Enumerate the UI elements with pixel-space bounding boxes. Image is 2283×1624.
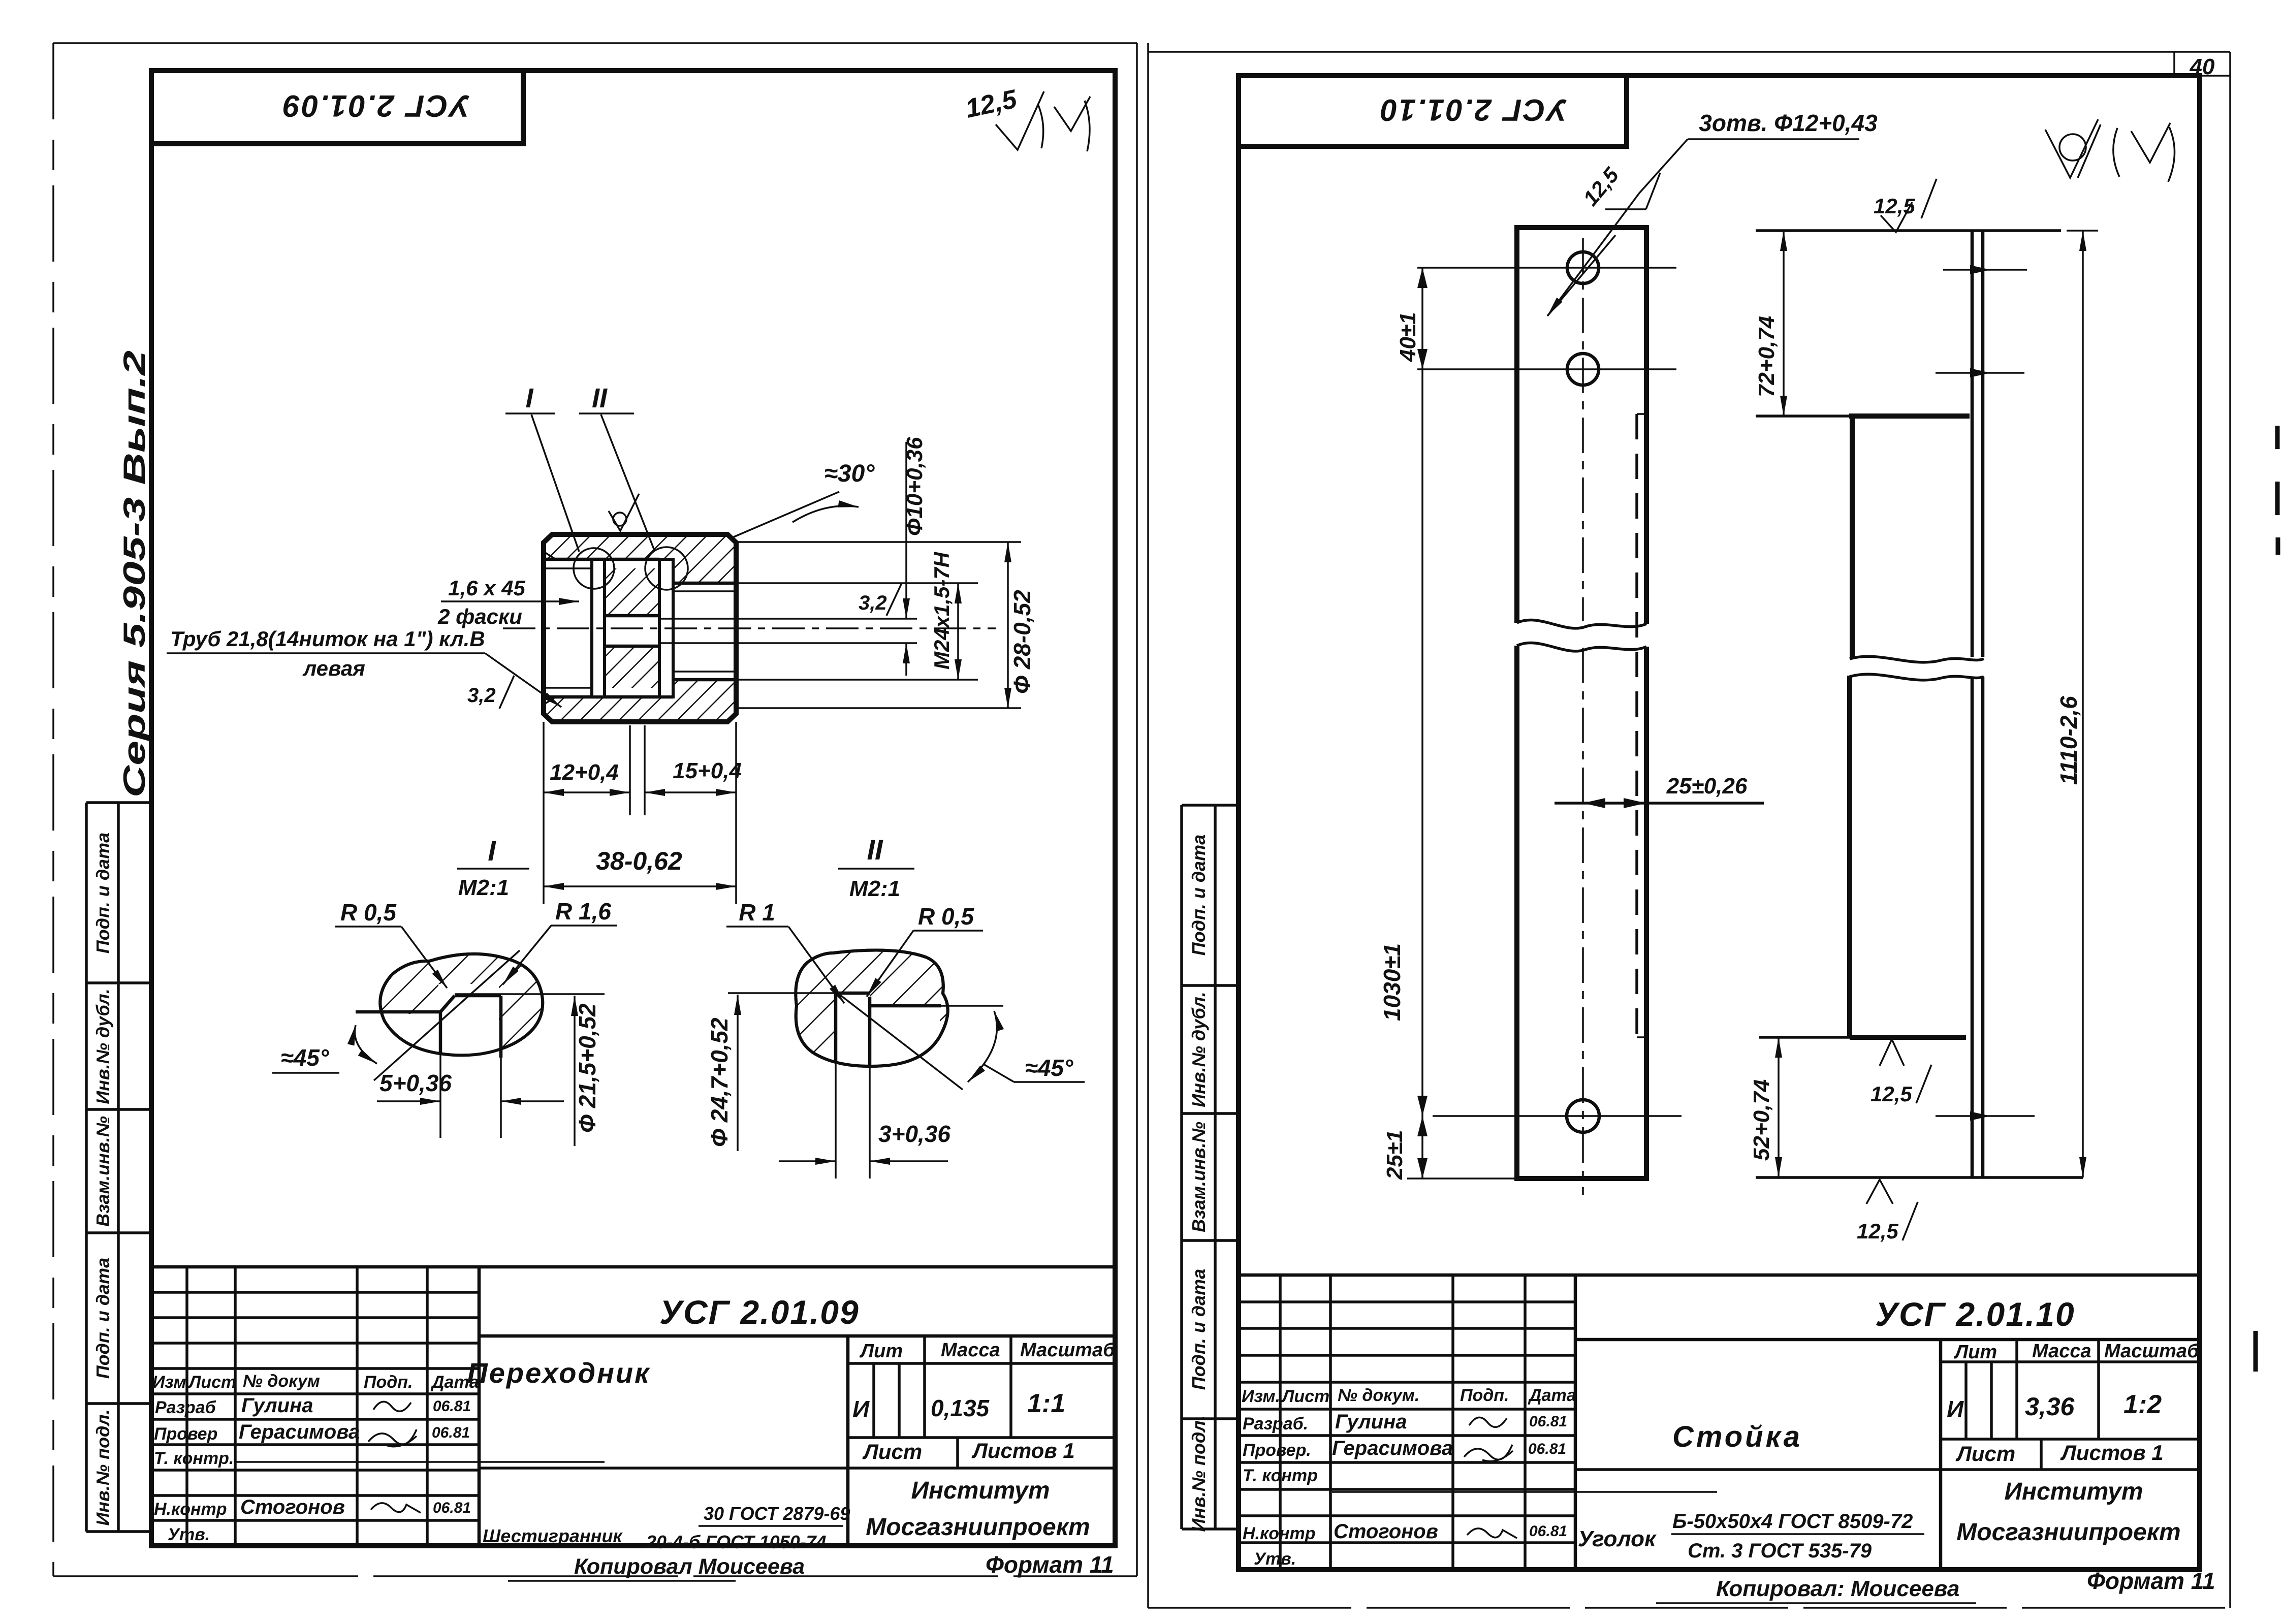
svg-text:25±1: 25±1 <box>1382 1130 1407 1180</box>
svg-text:5+0,36: 5+0,36 <box>379 1070 452 1096</box>
svg-text:Копировал Моисеева: Копировал Моисеева <box>574 1554 805 1579</box>
svg-text:Лист: Лист <box>1281 1387 1329 1406</box>
svg-text:Провер.: Провер. <box>1243 1441 1311 1460</box>
svg-text:Серия 5.905-3 Вып.2: Серия 5.905-3 Вып.2 <box>117 351 151 798</box>
svg-text:Подп.: Подп. <box>1460 1386 1509 1405</box>
svg-text:Масштаб: Масштаб <box>2104 1341 2200 1362</box>
svg-text:И: И <box>852 1396 870 1422</box>
svg-text:М2:1: М2:1 <box>849 876 900 901</box>
svg-text:Инв.№ дубл.: Инв.№ дубл. <box>92 989 113 1104</box>
svg-text:12,5: 12,5 <box>1857 1219 1898 1243</box>
svg-text:II: II <box>867 834 883 866</box>
svg-text:Листов 1: Листов 1 <box>2060 1441 2164 1464</box>
svg-text:Н.контр: Н.контр <box>1243 1524 1316 1543</box>
svg-text:Лит: Лит <box>859 1341 903 1362</box>
svg-text:R 0,5: R 0,5 <box>918 903 974 930</box>
svg-text:Подп. и дата: Подп. и дата <box>92 833 113 953</box>
svg-text:Ф 21,5+0,52: Ф 21,5+0,52 <box>574 1003 600 1133</box>
svg-text:М24х1,5-7Н: М24х1,5-7Н <box>930 551 954 670</box>
svg-text:Лит: Лит <box>1953 1342 1997 1363</box>
svg-text:Ф 28-0,52: Ф 28-0,52 <box>1009 590 1035 694</box>
svg-text:1,6 х 45: 1,6 х 45 <box>448 576 525 600</box>
svg-text:R 1,6: R 1,6 <box>555 898 611 925</box>
svg-text:Институт: Институт <box>911 1477 1050 1504</box>
svg-text:УСГ 2.01.09: УСГ 2.01.09 <box>282 89 470 123</box>
svg-text:06.81: 06.81 <box>433 1398 471 1415</box>
svg-text:Т. контр: Т. контр <box>1243 1466 1318 1485</box>
svg-text:Лист: Лист <box>1955 1442 2015 1466</box>
svg-text:Шестигранник: Шестигранник <box>483 1525 623 1546</box>
svg-text:Ф10+0,36: Ф10+0,36 <box>902 437 927 536</box>
svg-text:Провер: Провер <box>154 1424 217 1444</box>
svg-text:38-0,62: 38-0,62 <box>596 847 682 875</box>
svg-text:Инв.№ подл.: Инв.№ подл. <box>1188 1415 1209 1532</box>
svg-text:R 0,5: R 0,5 <box>340 899 397 926</box>
svg-text:Изм.: Изм. <box>1242 1387 1280 1406</box>
svg-text:М2:1: М2:1 <box>458 875 509 900</box>
svg-text:Ф 24,7+0,52: Ф 24,7+0,52 <box>706 1017 733 1147</box>
svg-text:Взам.инв.№: Взам.инв.№ <box>1188 1122 1209 1232</box>
svg-text:II: II <box>592 383 608 413</box>
svg-text:Подп. и дата: Подп. и дата <box>92 1258 113 1379</box>
svg-text:Мосгазниипроект: Мосгазниипроект <box>1956 1519 2180 1546</box>
svg-text:1110-2,6: 1110-2,6 <box>2055 696 2082 785</box>
svg-text:левая: левая <box>302 656 365 680</box>
svg-text:Ст. 3 ГОСТ 535-79: Ст. 3 ГОСТ 535-79 <box>1688 1540 1872 1562</box>
svg-text:УСГ 2.01.09: УСГ 2.01.09 <box>659 1293 859 1331</box>
svg-text:УСГ 2.01.10: УСГ 2.01.10 <box>1875 1295 2075 1333</box>
svg-text:I: I <box>488 835 496 867</box>
svg-text:≈45°: ≈45° <box>281 1044 329 1071</box>
svg-text:УСГ 2.01.10: УСГ 2.01.10 <box>1379 93 1568 127</box>
svg-text:3+0,36: 3+0,36 <box>878 1121 950 1147</box>
svg-text:Утв.: Утв. <box>168 1525 210 1544</box>
svg-text:≈45°: ≈45° <box>1025 1055 1073 1081</box>
svg-text:Копировал: Моисеева: Копировал: Моисеева <box>1716 1576 1959 1601</box>
svg-text:06.81: 06.81 <box>1528 1441 1566 1457</box>
svg-text:Стогонов: Стогонов <box>1334 1520 1438 1543</box>
svg-text:Институт: Институт <box>2004 1478 2143 1505</box>
svg-text:25±0,26: 25±0,26 <box>1666 774 1748 799</box>
svg-text:3,36: 3,36 <box>2025 1392 2075 1421</box>
svg-text:Масштаб: Масштаб <box>1020 1340 1116 1361</box>
svg-text:Дата: Дата <box>1528 1386 1576 1405</box>
svg-text:Переходник: Переходник <box>467 1357 650 1389</box>
svg-text:12+0,4: 12+0,4 <box>550 760 619 785</box>
svg-text:Мосгазниипроект: Мосгазниипроект <box>866 1514 1090 1541</box>
svg-text:Труб 21,8(14ниток на 1") кл.В: Труб 21,8(14ниток на 1") кл.В <box>170 627 485 651</box>
svg-text:№ докум.: № докум. <box>1338 1386 1419 1405</box>
svg-text:1030±1: 1030±1 <box>1379 943 1405 1021</box>
svg-text:Стойка: Стойка <box>1672 1420 1802 1453</box>
svg-text:Подп. и дата: Подп. и дата <box>1188 835 1209 956</box>
svg-text:Уголок: Уголок <box>1578 1526 1657 1551</box>
svg-text:40±1: 40±1 <box>1396 312 1420 362</box>
svg-text:52+0,74: 52+0,74 <box>1749 1079 1774 1161</box>
svg-text:72+0,74: 72+0,74 <box>1754 316 1779 397</box>
svg-text:Гулина: Гулина <box>1335 1411 1407 1433</box>
svg-text:0,135: 0,135 <box>931 1395 990 1421</box>
svg-text:Масса: Масса <box>941 1340 1000 1361</box>
svg-text:Масса: Масса <box>2032 1341 2091 1362</box>
svg-text:И: И <box>1947 1396 1964 1422</box>
svg-text:3,2: 3,2 <box>467 684 496 707</box>
svg-text:Подп. и дата: Подп. и дата <box>1188 1269 1209 1390</box>
svg-text:Взам.инв.№: Взам.инв.№ <box>92 1116 113 1227</box>
svg-text:≈30°: ≈30° <box>825 460 875 487</box>
svg-text:06.81: 06.81 <box>1529 1413 1567 1430</box>
svg-text:Разраб: Разраб <box>155 1398 216 1417</box>
svg-text:40: 40 <box>2190 54 2215 79</box>
svg-text:Стогонов: Стогонов <box>240 1496 345 1518</box>
svg-text:06.81: 06.81 <box>1529 1523 1567 1540</box>
svg-text:Формат 11: Формат 11 <box>2087 1568 2215 1594</box>
svg-text:3,2: 3,2 <box>859 592 887 614</box>
svg-text:Разраб.: Разраб. <box>1243 1414 1308 1434</box>
svg-text:Б-50х50х4 ГОСТ 8509-72: Б-50х50х4 ГОСТ 8509-72 <box>1672 1510 1913 1533</box>
svg-text:Подп.: Подп. <box>364 1373 413 1392</box>
svg-text:Т. контр.: Т. контр. <box>154 1449 234 1468</box>
svg-text:Герасимова: Герасимова <box>1332 1437 1453 1459</box>
svg-text:06.81: 06.81 <box>433 1500 471 1516</box>
svg-text:Лист: Лист <box>862 1440 922 1463</box>
svg-text:1:2: 1:2 <box>2123 1390 2162 1419</box>
svg-text:Утв.: Утв. <box>1254 1549 1296 1569</box>
svg-text:Инв.№ подл.: Инв.№ подл. <box>92 1409 113 1525</box>
svg-text:1:1: 1:1 <box>1027 1389 1065 1418</box>
svg-text:15+0,4: 15+0,4 <box>673 758 742 783</box>
svg-text:R 1: R 1 <box>739 899 775 926</box>
svg-text:12,5: 12,5 <box>1870 1082 1912 1106</box>
svg-text:Герасимова: Герасимова <box>239 1421 360 1443</box>
svg-text:2 фаски: 2 фаски <box>437 604 522 628</box>
svg-text:Формат 11: Формат 11 <box>986 1551 1114 1578</box>
svg-text:Изм: Изм <box>152 1373 186 1392</box>
svg-text:Лист: Лист <box>187 1373 236 1392</box>
svg-text:Инв.№ дубл.: Инв.№ дубл. <box>1188 992 1209 1107</box>
svg-text:3отв. Ф12+0,43: 3отв. Ф12+0,43 <box>1699 110 1878 136</box>
svg-text:20-4-б ГОСТ 1050-74: 20-4-б ГОСТ 1050-74 <box>646 1532 827 1552</box>
svg-text:Гулина: Гулина <box>241 1394 313 1417</box>
svg-text:30 ГОСТ 2879-69: 30 ГОСТ 2879-69 <box>704 1503 850 1524</box>
svg-text:Листов 1: Листов 1 <box>971 1439 1075 1462</box>
svg-text:06.81: 06.81 <box>432 1424 470 1441</box>
svg-text:№ докум: № докум <box>243 1372 320 1391</box>
svg-text:I: I <box>525 383 533 413</box>
svg-text:Н.контр: Н.контр <box>154 1500 227 1519</box>
